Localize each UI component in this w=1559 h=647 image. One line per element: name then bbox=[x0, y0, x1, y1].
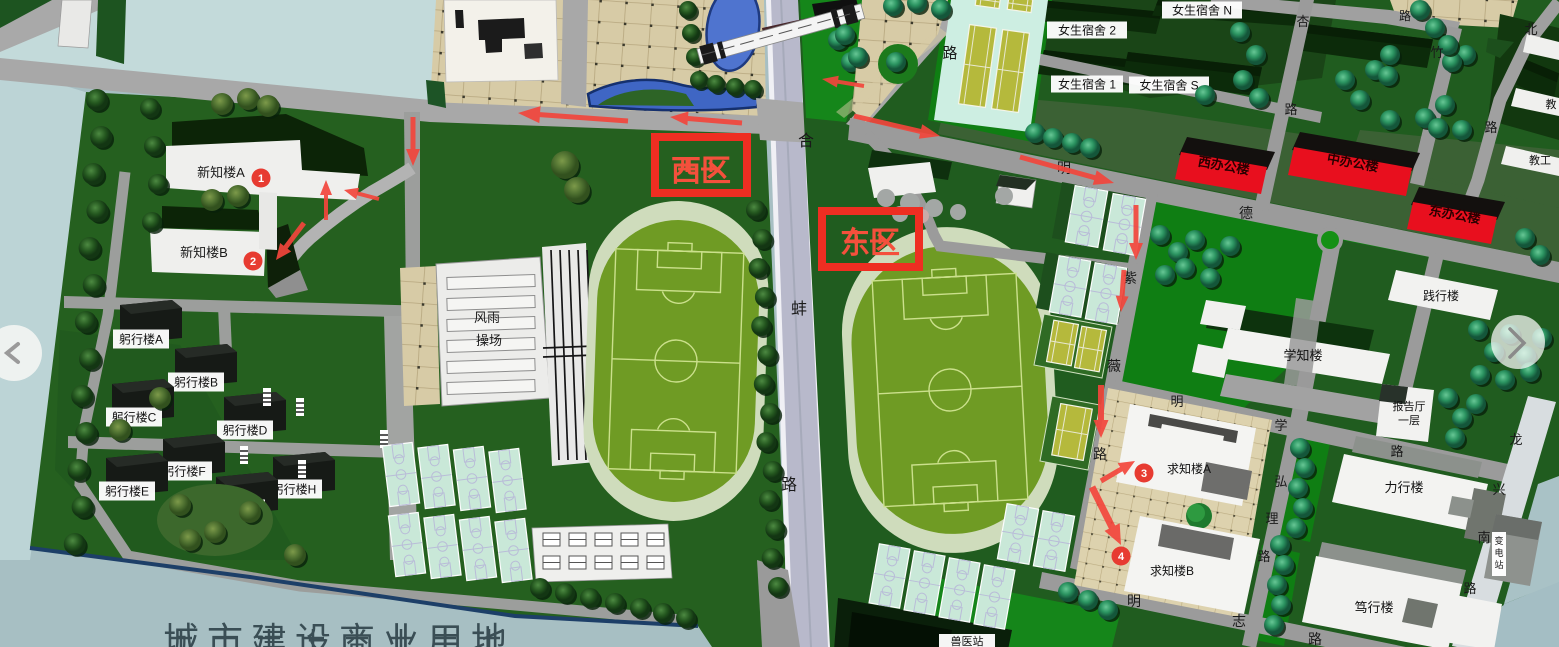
svg-text:力行楼: 力行楼 bbox=[1384, 480, 1423, 495]
svg-text:躬行楼H: 躬行楼H bbox=[272, 481, 317, 496]
svg-text:1: 1 bbox=[258, 173, 264, 185]
svg-text:路: 路 bbox=[781, 476, 797, 494]
svg-text:明: 明 bbox=[1127, 593, 1141, 609]
svg-text:竹: 竹 bbox=[1430, 45, 1443, 60]
svg-text:路: 路 bbox=[1484, 120, 1497, 135]
svg-text:北: 北 bbox=[1524, 22, 1537, 37]
svg-text:2: 2 bbox=[250, 256, 256, 268]
svg-text:女生宿舍 N: 女生宿舍 N bbox=[1172, 2, 1232, 17]
svg-text:路: 路 bbox=[1390, 444, 1403, 459]
svg-text:变: 变 bbox=[1494, 535, 1503, 546]
svg-text:东区: 东区 bbox=[840, 226, 900, 260]
svg-text:弘: 弘 bbox=[1274, 474, 1287, 489]
svg-text:风雨: 风雨 bbox=[474, 310, 500, 325]
svg-text:合: 合 bbox=[798, 132, 814, 150]
svg-text:路: 路 bbox=[1284, 102, 1297, 117]
svg-text:蚌: 蚌 bbox=[791, 300, 807, 318]
svg-text:报告厅: 报告厅 bbox=[1393, 399, 1426, 413]
svg-text:躬行楼B: 躬行楼B bbox=[174, 374, 218, 389]
svg-text:笃行楼: 笃行楼 bbox=[1354, 600, 1393, 615]
svg-text:躬行楼A: 躬行楼A bbox=[119, 331, 163, 346]
svg-text:学: 学 bbox=[1274, 418, 1287, 433]
svg-text:女生宿舍 S: 女生宿舍 S bbox=[1139, 77, 1198, 92]
svg-text:杏: 杏 bbox=[1296, 14, 1309, 29]
svg-text:女生宿舍 2: 女生宿舍 2 bbox=[1058, 22, 1116, 37]
svg-text:教工: 教工 bbox=[1529, 154, 1551, 167]
svg-text:4: 4 bbox=[1118, 551, 1125, 563]
svg-text:践行楼: 践行楼 bbox=[1423, 288, 1459, 303]
svg-text:理: 理 bbox=[1265, 511, 1278, 526]
svg-text:路: 路 bbox=[1463, 581, 1476, 596]
svg-text:学知楼: 学知楼 bbox=[1283, 348, 1322, 363]
svg-text:兽医站: 兽医站 bbox=[951, 634, 984, 647]
svg-text:路: 路 bbox=[1399, 8, 1411, 23]
svg-text:德: 德 bbox=[1239, 205, 1253, 221]
svg-text:新知楼B: 新知楼B bbox=[180, 245, 228, 260]
svg-text:躬行楼F: 躬行楼F bbox=[162, 463, 205, 478]
svg-text:站: 站 bbox=[1494, 559, 1503, 570]
svg-text:路: 路 bbox=[1257, 549, 1270, 564]
svg-text:南: 南 bbox=[1477, 530, 1490, 545]
svg-text:路: 路 bbox=[1308, 631, 1322, 647]
svg-text:3: 3 bbox=[1141, 468, 1147, 480]
svg-text:一层: 一层 bbox=[1398, 414, 1420, 427]
svg-text:躬行楼D: 躬行楼D bbox=[223, 422, 268, 437]
svg-text:电: 电 bbox=[1494, 547, 1503, 558]
svg-text:求知楼B: 求知楼B bbox=[1150, 563, 1194, 578]
svg-text:路: 路 bbox=[942, 45, 957, 62]
svg-text:操场: 操场 bbox=[476, 333, 502, 348]
svg-text:明: 明 bbox=[1170, 394, 1183, 409]
svg-text:西区: 西区 bbox=[671, 155, 731, 188]
svg-text:教: 教 bbox=[1546, 98, 1557, 111]
svg-text:求知楼A: 求知楼A bbox=[1167, 461, 1211, 476]
svg-text:路: 路 bbox=[1093, 446, 1107, 462]
svg-text:志: 志 bbox=[1232, 613, 1246, 629]
svg-text:新知楼A: 新知楼A bbox=[197, 165, 245, 180]
svg-text:躬行楼E: 躬行楼E bbox=[105, 483, 149, 498]
svg-text:兴: 兴 bbox=[1492, 482, 1505, 497]
svg-text:薇: 薇 bbox=[1107, 358, 1121, 374]
svg-text:龙: 龙 bbox=[1509, 432, 1522, 447]
svg-text:女生宿舍 1: 女生宿舍 1 bbox=[1058, 76, 1116, 91]
